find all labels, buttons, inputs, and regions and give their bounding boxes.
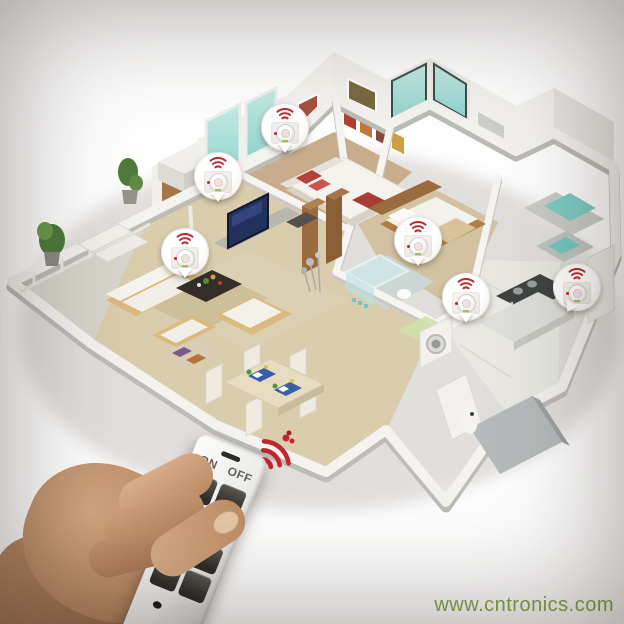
sensor-device-icon [271,122,299,144]
sensor-device-icon [171,247,199,269]
sensor-badge-laundry [442,273,490,321]
sensor-device-icon [452,292,480,314]
wifi-signal-icon [454,277,478,291]
sensor-badge-master-bedroom [261,103,309,151]
wifi-signal-icon [565,267,589,281]
watermark-text: www.cntronics.com [434,594,614,617]
sensor-device-icon [204,171,232,193]
sensor-badge-living-room [161,228,209,276]
wifi-signal-icon [206,156,230,170]
indicator-dot [152,600,163,610]
sensor-badge-bedroom-2 [394,216,442,264]
wifi-signal-icon [406,220,430,234]
promo-scene: ON OFF www.cntronics.com [0,0,624,624]
sensor-badge-kitchen [553,263,601,311]
wifi-signal-icon [273,107,297,121]
remote-off-label: OFF [225,464,254,487]
sensor-device-icon [404,235,432,257]
sensor-badge-entry-hall [194,152,242,200]
remote-button [177,569,212,604]
wifi-signal-icon [173,232,197,246]
